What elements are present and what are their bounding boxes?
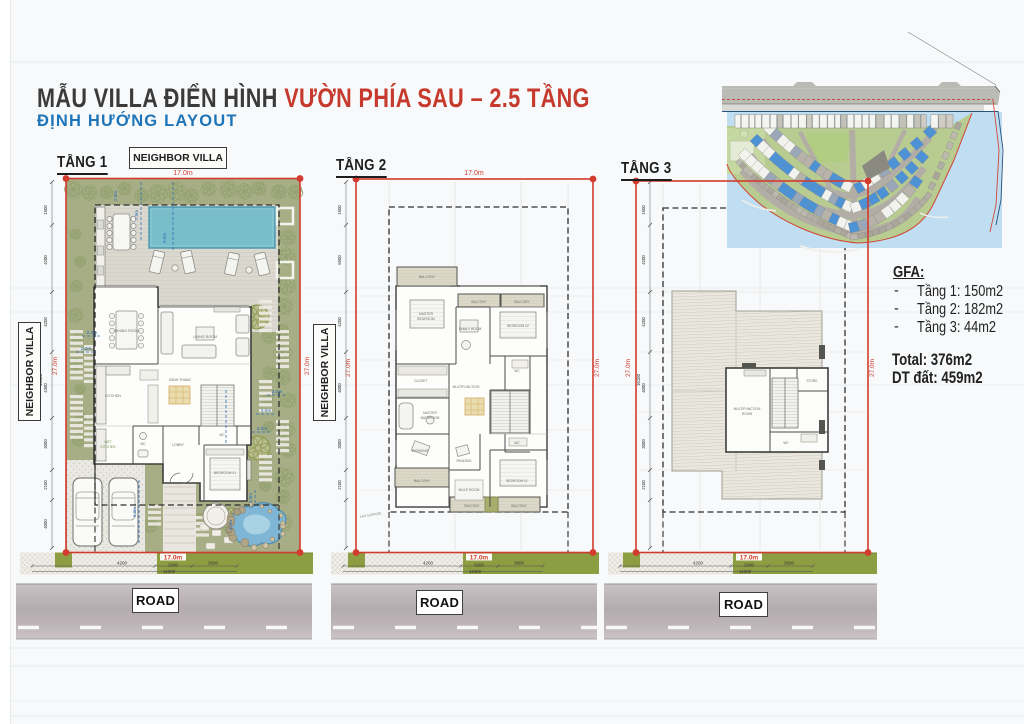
- svg-text:27.0m: 27.0m: [52, 357, 59, 375]
- svg-text:2.0m: 2.0m: [81, 346, 92, 352]
- svg-text:3200: 3200: [168, 563, 179, 568]
- svg-text:17.0m: 17.0m: [470, 555, 489, 562]
- svg-text:MÁI GARAGE: MÁI GARAGE: [360, 511, 383, 519]
- svg-text:LIVING ROOM: LIVING ROOM: [193, 335, 217, 339]
- svg-text:3200: 3200: [474, 563, 485, 568]
- svg-text:BALCONY: BALCONY: [511, 504, 527, 508]
- svg-text:BALCONY: BALCONY: [464, 504, 480, 508]
- svg-text:BALCONY: BALCONY: [471, 300, 487, 304]
- svg-text:4200: 4200: [641, 317, 646, 327]
- svg-text:7.9m: 7.9m: [134, 210, 139, 220]
- svg-text:BATHROOM: BATHROOM: [421, 416, 440, 420]
- svg-text:2.0m: 2.0m: [113, 191, 118, 201]
- svg-text:WC: WC: [514, 441, 520, 445]
- svg-text:MULTI ROOM: MULTI ROOM: [459, 488, 480, 492]
- svg-text:SẢNH THANG: SẢNH THANG: [169, 377, 192, 382]
- svg-text:6.0m: 6.0m: [132, 507, 137, 517]
- svg-text:17.0m: 17.0m: [164, 555, 183, 562]
- svg-text:16100: 16100: [636, 373, 641, 386]
- svg-text:11000: 11000: [163, 569, 176, 574]
- svg-text:READING: READING: [456, 459, 471, 463]
- svg-text:1500: 1500: [43, 205, 48, 215]
- svg-text:STORE: STORE: [807, 379, 818, 383]
- svg-text:2.0m: 2.0m: [272, 389, 283, 395]
- svg-text:CLOSET: CLOSET: [414, 379, 428, 383]
- svg-text:2100: 2100: [337, 480, 342, 490]
- svg-text:ROOM: ROOM: [742, 412, 753, 416]
- svg-text:WC: WC: [219, 433, 225, 437]
- svg-text:MASTER: MASTER: [423, 411, 437, 415]
- svg-text:27.0m: 27.0m: [594, 359, 601, 377]
- svg-text:BALCONY: BALCONY: [414, 479, 431, 483]
- svg-text:27.0m: 27.0m: [869, 359, 876, 377]
- svg-text:3600: 3600: [208, 561, 219, 566]
- svg-text:BEDROOM 01: BEDROOM 01: [214, 471, 236, 475]
- svg-text:KITCHEN: KITCHEN: [105, 394, 121, 398]
- svg-text:WC: WC: [783, 441, 789, 445]
- svg-text:3.5m: 3.5m: [257, 426, 268, 432]
- svg-text:3000: 3000: [337, 439, 342, 449]
- svg-text:4000: 4000: [337, 383, 342, 393]
- svg-text:3.0m: 3.0m: [248, 493, 253, 503]
- svg-text:1500: 1500: [337, 205, 342, 215]
- svg-text:BALCONY: BALCONY: [419, 275, 436, 279]
- svg-text:4200: 4200: [43, 255, 48, 265]
- svg-text:27.0m: 27.0m: [625, 359, 632, 377]
- svg-text:4000: 4000: [43, 519, 48, 529]
- svg-text:4200: 4200: [43, 317, 48, 327]
- svg-text:BEDROOM 01: BEDROOM 01: [506, 479, 528, 483]
- svg-text:17.0m: 17.0m: [464, 170, 484, 177]
- svg-text:WC: WC: [514, 369, 520, 373]
- svg-text:BEDROOM 02: BEDROOM 02: [507, 324, 529, 328]
- svg-text:2100: 2100: [43, 480, 48, 490]
- svg-text:BEDROOM: BEDROOM: [417, 317, 435, 321]
- svg-text:17.0m: 17.0m: [173, 170, 193, 177]
- svg-text:27.0m: 27.0m: [304, 357, 311, 375]
- svg-text:3.0m: 3.0m: [261, 408, 272, 414]
- svg-text:1500: 1500: [641, 205, 646, 215]
- svg-text:4200: 4200: [117, 561, 128, 566]
- svg-text:MASTER: MASTER: [419, 312, 434, 316]
- svg-text:3000: 3000: [641, 439, 646, 449]
- svg-text:3200: 3200: [744, 563, 755, 568]
- svg-text:2100: 2100: [641, 480, 646, 490]
- svg-text:FAMILY ROOM: FAMILY ROOM: [459, 327, 482, 331]
- svg-text:WC: WC: [140, 442, 146, 446]
- svg-text:MULTIFUNCTION: MULTIFUNCTION: [734, 407, 761, 411]
- svg-text:BALCONY: BALCONY: [514, 300, 530, 304]
- svg-text:4200: 4200: [693, 561, 704, 566]
- svg-text:4200: 4200: [337, 317, 342, 327]
- svg-text:6500: 6500: [337, 255, 342, 265]
- svg-text:3000: 3000: [43, 439, 48, 449]
- svg-text:17.0m: 17.0m: [740, 555, 759, 562]
- svg-text:11000: 11000: [739, 569, 752, 574]
- svg-text:4300: 4300: [43, 383, 48, 393]
- svg-text:11000: 11000: [469, 569, 482, 574]
- svg-text:DINING ROOM: DINING ROOM: [115, 329, 140, 333]
- svg-text:3600: 3600: [784, 561, 795, 566]
- svg-text:9.5m: 9.5m: [162, 233, 167, 243]
- svg-text:WET: WET: [104, 440, 112, 444]
- svg-text:2.5m: 2.5m: [87, 330, 98, 336]
- svg-text:MULTIFUNCTION: MULTIFUNCTION: [453, 385, 480, 389]
- svg-text:4.0m: 4.0m: [228, 520, 233, 530]
- svg-text:4200: 4200: [423, 561, 434, 566]
- svg-text:LOBBY: LOBBY: [172, 443, 185, 447]
- svg-text:3600: 3600: [514, 561, 525, 566]
- svg-text:KITCHEN: KITCHEN: [101, 445, 116, 449]
- svg-text:4000: 4000: [641, 383, 646, 393]
- svg-text:WORKING: WORKING: [412, 449, 429, 453]
- svg-text:4200: 4200: [641, 255, 646, 265]
